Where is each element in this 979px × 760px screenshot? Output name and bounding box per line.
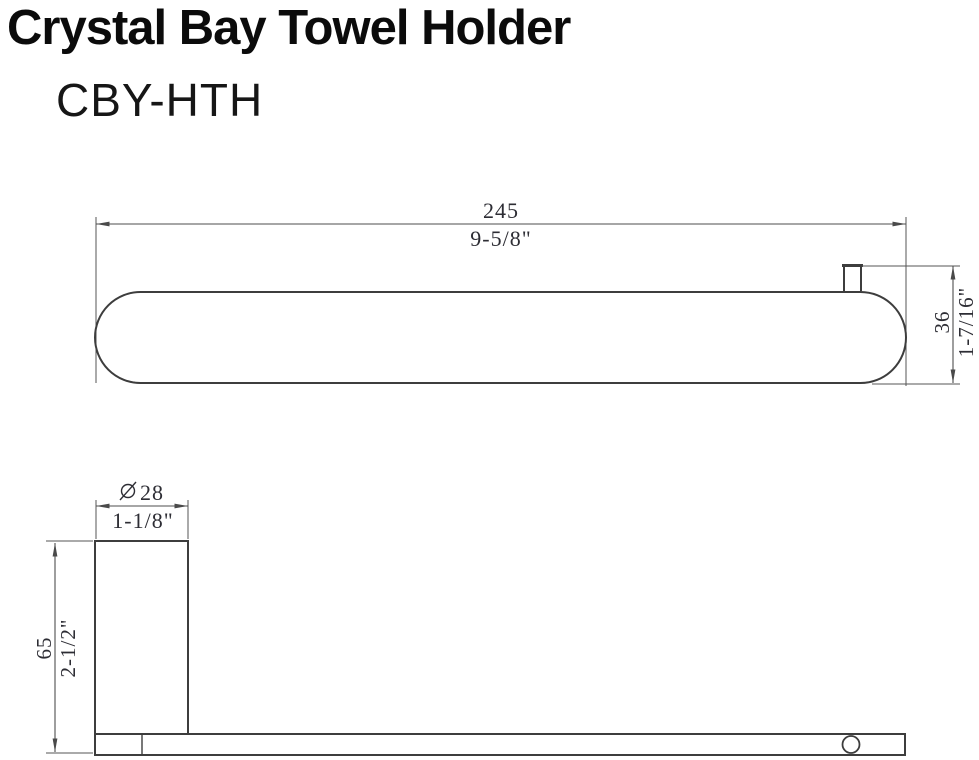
side-view-group: 28 1-1/8" 65 2-1/2" xyxy=(32,480,905,755)
mounting-pin-circle xyxy=(843,736,860,753)
depth-dim-metric: 36 xyxy=(930,311,954,334)
diameter-dim-metric: 28 xyxy=(140,480,164,505)
diameter-symbol-icon xyxy=(120,482,136,500)
mounting-peg xyxy=(844,265,861,291)
towel-bar-side-view-outline xyxy=(95,734,905,755)
top-view-group: 245 9-5/8" 36 1-7/16" xyxy=(95,198,978,386)
wall-post-outline xyxy=(95,541,188,734)
height-dim-metric: 65 xyxy=(32,637,56,660)
technical-drawing: 245 9-5/8" 36 1-7/16" 28 1-1/8" xyxy=(0,0,979,760)
height-dim-imperial: 2-1/2" xyxy=(56,619,80,678)
towel-bar-top-view-outline xyxy=(95,292,906,383)
depth-dim-imperial: 1-7/16" xyxy=(954,287,978,357)
width-dim-metric: 245 xyxy=(483,198,519,223)
diameter-dim-imperial: 1-1/8" xyxy=(112,508,173,533)
width-dim-imperial: 9-5/8" xyxy=(470,226,531,251)
